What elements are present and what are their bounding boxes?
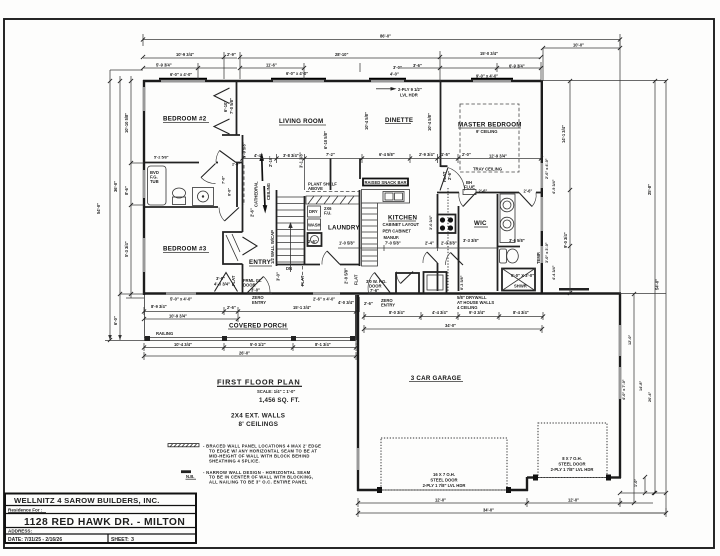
svg-text:2'-10": 2'-10" [268,156,273,167]
svg-text:12'-0": 12'-0" [628,334,632,345]
svg-text:10'-4 5/8": 10'-4 5/8" [427,113,432,131]
svg-text:FLUE: FLUE [464,185,475,190]
svg-text:12'-9 3/4": 12'-9 3/4" [489,153,507,158]
svg-text:2'-6": 2'-6" [227,305,236,310]
svg-text:4'-0 3/4": 4'-0 3/4" [214,282,230,287]
svg-text:6'-10": 6'-10" [223,101,228,112]
svg-text:36'-0": 36'-0" [113,181,118,192]
svg-text:KITCHEN: KITCHEN [388,215,418,222]
svg-text:SHEET:: SHEET: [111,537,129,543]
svg-text:4'-4 3/4": 4'-4 3/4" [552,265,556,280]
svg-text:34'-0": 34'-0" [483,508,494,513]
svg-text:3'-8 3/4": 3'-8 3/4" [283,153,299,158]
svg-text:1,456 SQ. FT.: 1,456 SQ. FT. [259,397,300,404]
svg-text:ABOVE: ABOVE [308,186,323,191]
svg-text:DRY: DRY [309,209,318,214]
svg-text:STEEL DOOR: STEEL DOOR [430,478,457,483]
svg-text:2'-6": 2'-6" [524,188,533,193]
svg-text:9'-3 3/4": 9'-3 3/4" [469,310,485,315]
svg-text:DATE: 7/31/25 - 2/16/26: DATE: 7/31/25 - 2/16/26 [8,537,62,543]
svg-text:5'-0 1/2": 5'-0 1/2" [250,342,266,347]
svg-text:2'-6" x 4'-0": 2'-6" x 4'-0" [313,297,335,302]
svg-text:2'-0": 2'-0" [462,152,471,157]
svg-text:12'-0": 12'-0" [435,498,446,503]
svg-text:2'-6": 2'-6" [364,301,373,306]
svg-text:6'-0" x 4'-0": 6'-0" x 4'-0" [286,71,308,76]
svg-text:4'-4 3/4": 4'-4 3/4" [432,310,448,315]
svg-text:WASH: WASH [308,223,321,228]
svg-text:10'-9 3/4": 10'-9 3/4" [169,314,187,319]
svg-text:6'-0": 6'-0" [113,316,118,325]
svg-text:FIRST FLOOR PLAN: FIRST FLOOR PLAN [217,378,300,387]
svg-text:SHEATHING 4 SPLICE.: SHEATHING 4 SPLICE. [209,458,260,463]
svg-text:11'-6": 11'-6" [266,63,277,68]
svg-text:4'-0 3/4": 4'-0 3/4" [338,300,354,305]
svg-text:2'-4": 2'-4" [232,163,240,167]
svg-text:3: 3 [131,537,134,543]
svg-text:10'-4 5/8": 10'-4 5/8" [364,112,369,130]
svg-text:CEILING: CEILING [266,183,271,200]
svg-text:2'-6": 2'-6" [447,171,452,180]
svg-text:15'-1 3/4": 15'-1 3/4" [293,305,311,310]
svg-text:ALL NAILING TO BE 3" O.C. ENTI: ALL NAILING TO BE 3" O.C. ENTIRE PANEL [209,479,308,484]
svg-text:2'-9 3/4": 2'-9 3/4" [419,152,435,157]
svg-text:SCALE: 1/4" = 1'-0": SCALE: 1/4" = 1'-0" [257,389,295,394]
svg-text:STEEL DOOR: STEEL DOOR [558,462,585,467]
svg-text:2X4 EXT. WALLS: 2X4 EXT. WALLS [231,412,285,419]
svg-text:3'-3 3/8": 3'-3 3/8" [463,238,479,243]
svg-text:RAILING: RAILING [156,331,173,336]
svg-text:4'-0" x 7'-0": 4'-0" x 7'-0" [622,379,626,400]
svg-text:2'-4": 2'-4" [425,241,434,246]
svg-text:5'-9 3/4": 5'-9 3/4" [156,63,172,68]
svg-text:SHWR: SHWR [514,284,527,289]
svg-text:8'-4 3/4": 8'-4 3/4" [513,310,529,315]
svg-text:8'-3 5/8": 8'-3 5/8" [460,275,464,290]
svg-text:TUB: TUB [150,179,159,184]
svg-text:7'-8": 7'-8" [222,176,226,184]
svg-text:1'-5": 1'-5" [441,152,450,157]
svg-text:BEDROOM #3: BEDROOM #3 [163,246,207,253]
svg-text:4'-4": 4'-4" [254,153,263,158]
svg-text:86'-0": 86'-0" [380,34,391,39]
svg-text:2-PLY 1 7/8" LVL HDR: 2-PLY 1 7/8" LVL HDR [551,467,594,472]
svg-text:7'-6": 7'-6" [370,288,379,293]
svg-text:2'-6": 2'-6" [250,208,255,217]
svg-text:2'-9 5/8": 2'-9 5/8" [344,268,349,284]
svg-text:8 X 7 O.H.: 8 X 7 O.H. [562,456,582,461]
svg-text:9'-0" x 4'-0": 9'-0" x 4'-0" [476,74,498,79]
svg-text:34'-0": 34'-0" [445,323,456,328]
svg-text:2'-0 3/8": 2'-0 3/8" [441,241,457,246]
svg-text:8' CEILINGS: 8' CEILINGS [239,421,279,428]
svg-text:BEDROOM #2: BEDROOM #2 [163,116,207,123]
svg-text:5'-2 5/8": 5'-2 5/8" [154,156,169,160]
svg-text:3 CAR GARAGE: 3 CAR GARAGE [411,375,461,382]
svg-text:4'-9 3/4": 4'-9 3/4" [552,179,556,194]
svg-text:Residence For :: Residence For : [8,508,43,513]
svg-text:6'-0" x 4'-0": 6'-0" x 4'-0" [170,72,192,77]
svg-text:25'-8": 25'-8" [647,184,652,195]
svg-text:28'-10": 28'-10" [335,52,348,57]
svg-text:10'-10 5/8": 10'-10 5/8" [124,113,129,133]
svg-text:WIC: WIC [474,220,487,227]
svg-text:26'-4": 26'-4" [648,391,652,402]
svg-text:6'-4 5/8": 6'-4 5/8" [379,152,395,157]
svg-text:TEMP.: TEMP. [536,252,541,264]
svg-text:16 X 7 O.H.: 16 X 7 O.H. [433,472,455,477]
svg-text:3'-0": 3'-0" [216,276,225,281]
svg-text:LAUNDRY: LAUNDRY [328,225,360,232]
svg-text:1'-0 5/8": 1'-0 5/8" [339,241,355,246]
svg-text:7'-0 5/8": 7'-0 5/8" [385,241,401,246]
svg-text:1128 RED HAWK DR. - MILTON: 1128 RED HAWK DR. - MILTON [24,517,185,528]
svg-text:26'-0": 26'-0" [239,351,250,356]
svg-text:9' CEILING: 9' CEILING [476,129,497,134]
svg-text:14'-1 3/4": 14'-1 3/4" [561,125,566,143]
svg-text:14'-8": 14'-8" [639,380,643,391]
svg-text:TRAY CEILING: TRAY CEILING [473,167,502,172]
svg-text:2-PLY 9 1/2": 2-PLY 9 1/2" [398,87,422,92]
svg-text:2'-6": 2'-6" [479,188,488,193]
svg-text:MASTER BEDROOM: MASTER BEDROOM [458,122,522,129]
svg-text:54'-0": 54'-0" [655,279,660,290]
svg-text:6'-10 5/8": 6'-10 5/8" [323,131,328,149]
svg-text:5'-3 3/4": 5'-3 3/4" [124,241,129,257]
svg-text:7'-2": 7'-2" [326,152,335,157]
svg-text:8'-1 3/4": 8'-1 3/4" [315,342,331,347]
svg-text:1'-0": 1'-0" [634,479,638,487]
svg-text:3'-0": 3'-0" [393,65,402,70]
svg-text:8'-9 3/4": 8'-9 3/4" [151,304,167,309]
svg-text:12'-0": 12'-0" [568,498,579,503]
svg-text:ENTRY: ENTRY [252,300,266,305]
svg-text:10'-0": 10'-0" [573,43,584,48]
svg-text:LIVING ROOM: LIVING ROOM [279,118,323,125]
svg-text:7'-0 5/8": 7'-0 5/8" [229,98,234,114]
svg-text:RAISED SNACK BAR: RAISED SNACK BAR [364,180,406,185]
svg-text:MANUF.: MANUF. [384,235,400,240]
svg-text:CATHEDRAL: CATHEDRAL [254,181,259,207]
svg-text:ADDRESS:: ADDRESS: [8,529,32,534]
svg-text:F.U.: F.U. [324,211,331,216]
svg-text:3'-0" x 3'-0": 3'-0" x 3'-0" [545,242,549,263]
svg-text:5'-0" x 4'-0": 5'-0" x 4'-0" [170,297,192,302]
svg-text:LVL HDR: LVL HDR [400,93,418,98]
svg-text:DINETTE: DINETTE [385,117,413,124]
svg-text:2'-6" x 4'-0": 2'-6" x 4'-0" [545,158,549,179]
svg-text:8'-0 3/4": 8'-0 3/4" [389,310,405,315]
svg-text:9'-0 3/4": 9'-0 3/4" [563,232,568,248]
svg-text:FLAT: FLAT [231,275,236,286]
svg-text:10'-4 3/4": 10'-4 3/4" [174,342,192,347]
svg-text:54'-0": 54'-0" [96,203,101,214]
svg-text:6'-0" X 3'-0": 6'-0" X 3'-0" [511,273,534,278]
svg-text:3'-0 3/4": 3'-0 3/4" [429,215,433,230]
svg-text:3'-6 5/8": 3'-6 5/8" [509,238,525,243]
svg-text:WELLNITZ 4 SAROW BUILDERS, INC: WELLNITZ 4 SAROW BUILDERS, INC. [14,496,160,505]
svg-text:FLAT: FLAT [354,274,359,285]
svg-text:PER CABINET: PER CABINET [383,229,412,234]
svg-text:N.B.: N.B. [186,474,194,479]
svg-text:3'-0": 3'-0" [251,288,260,293]
svg-text:2'-9": 2'-9" [227,52,236,57]
svg-text:8'-8": 8'-8" [228,188,232,196]
svg-text:4'-0": 4'-0" [390,72,399,77]
svg-text:10'-9 3/4": 10'-9 3/4" [176,52,194,57]
svg-text:DN: DN [286,266,292,271]
svg-text:ENTRY: ENTRY [381,303,395,308]
svg-text:ENTRY: ENTRY [249,259,272,266]
svg-text:2-PLY 1 7/8" LVL HDR: 2-PLY 1 7/8" LVL HDR [423,483,466,488]
svg-text:8'-6": 8'-6" [124,186,129,195]
svg-text:15'-0 3/4": 15'-0 3/4" [480,51,498,56]
svg-text:3'-6": 3'-6" [413,63,422,68]
svg-text:FLAT: FLAT [300,275,305,286]
svg-text:COVERED PORCH: COVERED PORCH [229,323,287,330]
svg-text:3'-0": 3'-0" [276,272,281,281]
svg-text:6'-9 3/4": 6'-9 3/4" [509,64,525,69]
svg-text:CABINET LAYOUT: CABINET LAYOUT [383,222,420,227]
